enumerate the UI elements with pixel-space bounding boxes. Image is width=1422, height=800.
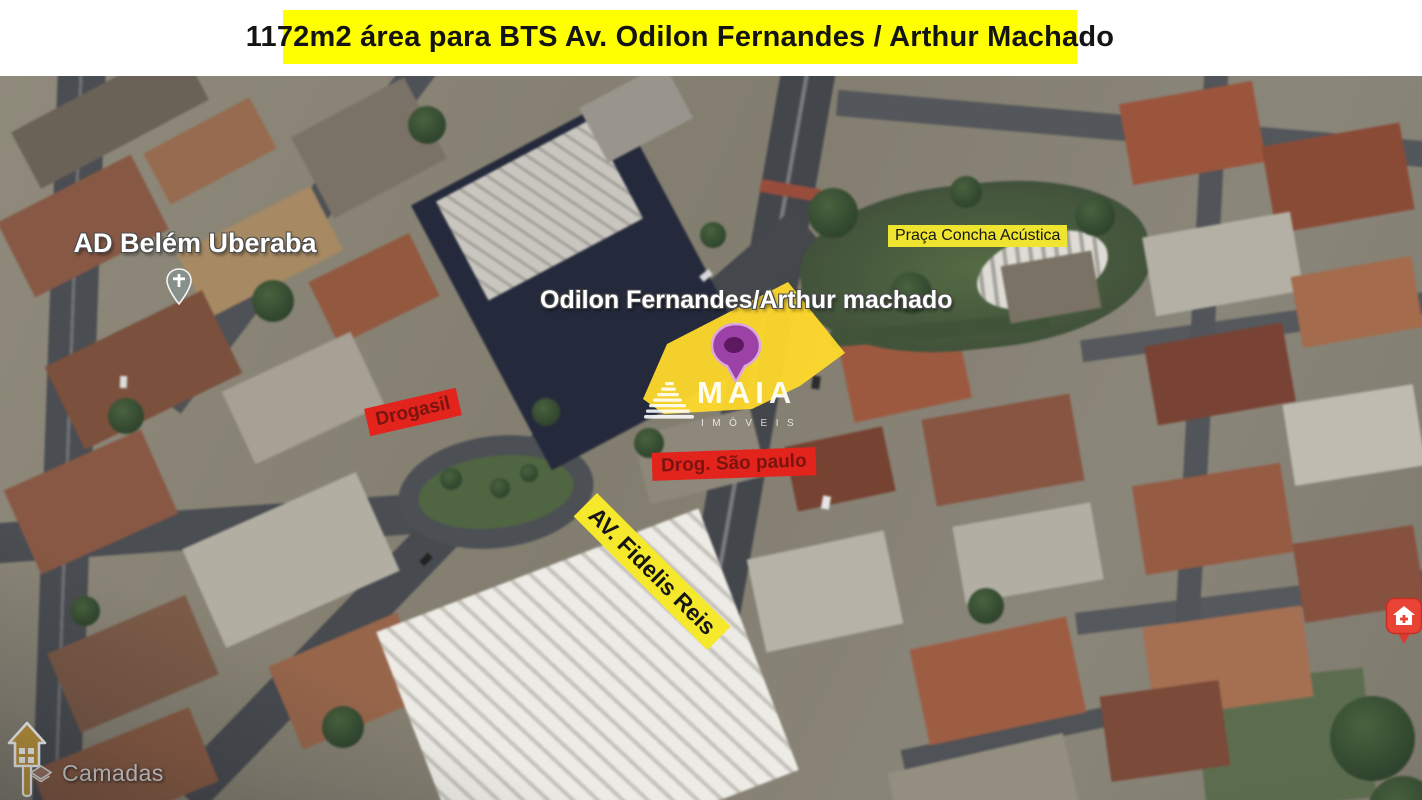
church-label: AD Belém Uberaba <box>70 228 320 259</box>
map-tree <box>490 478 510 498</box>
map-building <box>952 502 1103 603</box>
watermark-subtitle: IMÓVEIS <box>701 418 802 429</box>
map-car <box>811 376 821 390</box>
map-tree <box>252 280 294 322</box>
page-title: 1172m2 área para BTS Av. Odilon Fernande… <box>283 10 1077 64</box>
map-tree <box>520 464 538 482</box>
map-tree <box>808 188 858 238</box>
banner: 1172m2 área para BTS Av. Odilon Fernande… <box>0 0 1422 76</box>
map-building <box>1282 384 1422 486</box>
screenshot-stage: 1172m2 área para BTS Av. Odilon Fernande… <box>0 0 1422 800</box>
map-tree <box>440 468 462 490</box>
square-label: Praça Concha Acústica <box>888 225 1067 247</box>
map-building <box>1100 680 1231 782</box>
church-pin-icon[interactable] <box>165 268 193 306</box>
map-car <box>120 376 127 388</box>
map-car <box>821 495 831 509</box>
map-building <box>1132 463 1294 575</box>
drog-sao-paulo-label: Drog. São paulo <box>652 447 817 481</box>
map-tree <box>408 106 446 144</box>
map-building <box>921 394 1084 507</box>
layers-diamond-icon <box>29 763 53 787</box>
site-label: Odilon Fernandes/Arthur machado <box>540 286 950 315</box>
layers-button[interactable]: Camadas <box>26 758 206 790</box>
layers-button-label: Camadas <box>62 760 164 787</box>
map-tree <box>532 398 560 426</box>
map-tree <box>1075 196 1115 236</box>
watermark-brand: MAIA <box>697 375 796 411</box>
map-tree <box>968 588 1004 624</box>
map-tree <box>108 398 144 434</box>
map-building <box>1119 81 1266 185</box>
map-building <box>747 530 904 652</box>
map-tree <box>322 706 364 748</box>
map-building <box>222 332 385 465</box>
map-tree <box>700 222 726 248</box>
map-terrain <box>0 76 1422 800</box>
satellite-map[interactable]: AD Belém Uberaba Odilon Fernandes/Arthur… <box>0 76 1422 800</box>
red-house-pin-icon[interactable] <box>1384 596 1422 646</box>
maia-logo-icon <box>644 382 694 424</box>
map-tree <box>950 176 982 208</box>
map-building <box>1142 212 1304 317</box>
map-tree <box>70 596 100 626</box>
map-tree <box>1330 696 1415 781</box>
map-building <box>1291 256 1422 348</box>
